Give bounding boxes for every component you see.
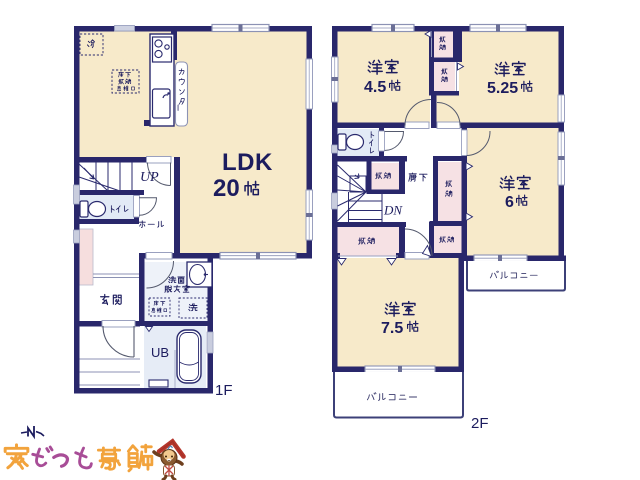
svg-text:7.5: 7.5 (381, 320, 403, 337)
svg-text:5.25: 5.25 (487, 80, 518, 97)
svg-text:UB: UB (151, 345, 169, 360)
svg-text:6: 6 (505, 194, 514, 211)
svg-text:DN: DN (383, 203, 403, 218)
svg-text:UP: UP (140, 170, 159, 185)
svg-text:2F: 2F (471, 415, 489, 432)
svg-text:20: 20 (213, 175, 240, 202)
svg-text:4.5: 4.5 (364, 79, 386, 96)
svg-text:1F: 1F (215, 382, 233, 399)
svg-text:LDK: LDK (222, 149, 273, 176)
